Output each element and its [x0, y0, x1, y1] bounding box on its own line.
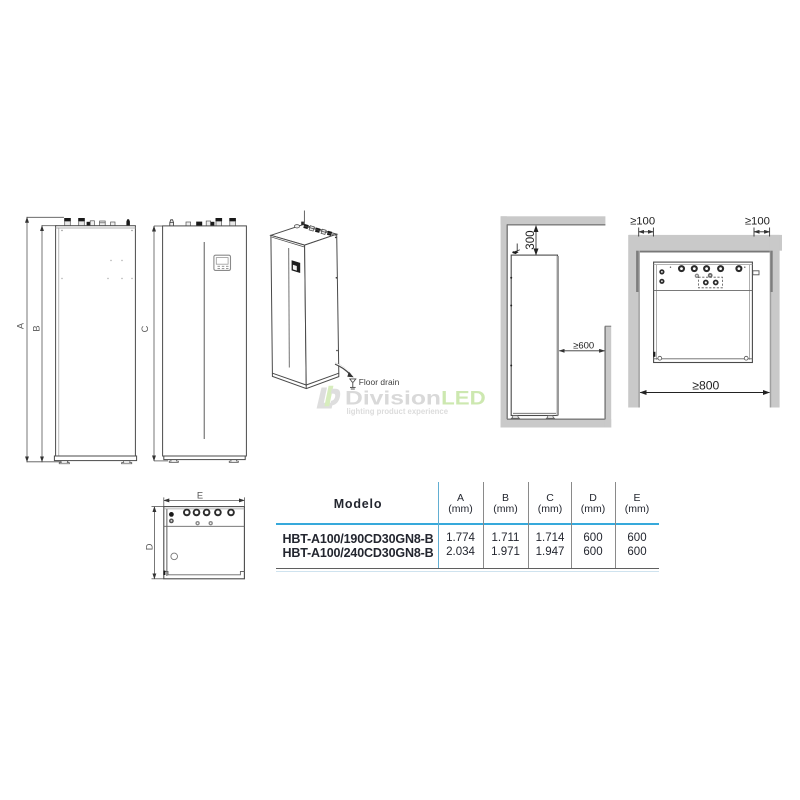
svg-text:B: B: [32, 325, 42, 331]
svg-text:D: D: [145, 543, 155, 550]
svg-text:C: C: [140, 325, 150, 332]
svg-text:≥100: ≥100: [630, 216, 655, 228]
svg-text:300: 300: [525, 231, 537, 250]
svg-text:≥600: ≥600: [573, 341, 594, 352]
svg-text:≥800: ≥800: [692, 379, 719, 393]
svg-text:E: E: [197, 491, 203, 501]
svg-text:A: A: [15, 322, 25, 329]
svg-text:Floor drain: Floor drain: [359, 377, 400, 387]
svg-text:≥100: ≥100: [745, 216, 770, 228]
